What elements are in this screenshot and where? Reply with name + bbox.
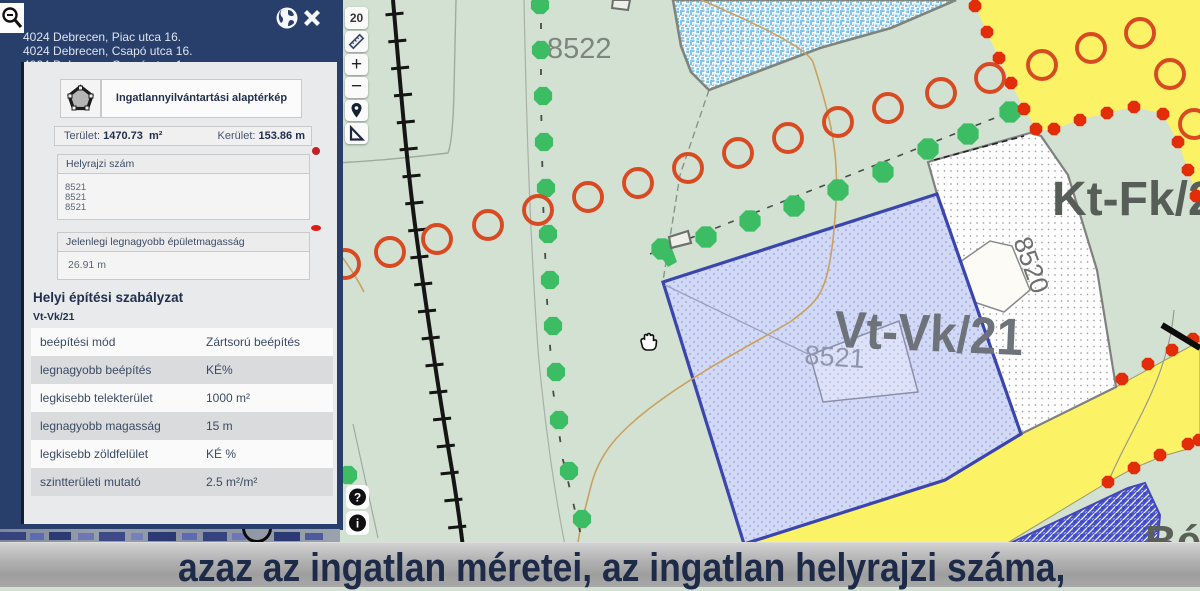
svg-text:?: ? (354, 491, 361, 505)
svg-text:8522: 8522 (547, 33, 612, 65)
svg-text:Vt-Vk/21: Vt-Vk/21 (833, 300, 1024, 366)
svg-text:i: i (356, 517, 359, 531)
svg-text:Kt-Fk/2: Kt-Fk/2 (1052, 173, 1200, 226)
